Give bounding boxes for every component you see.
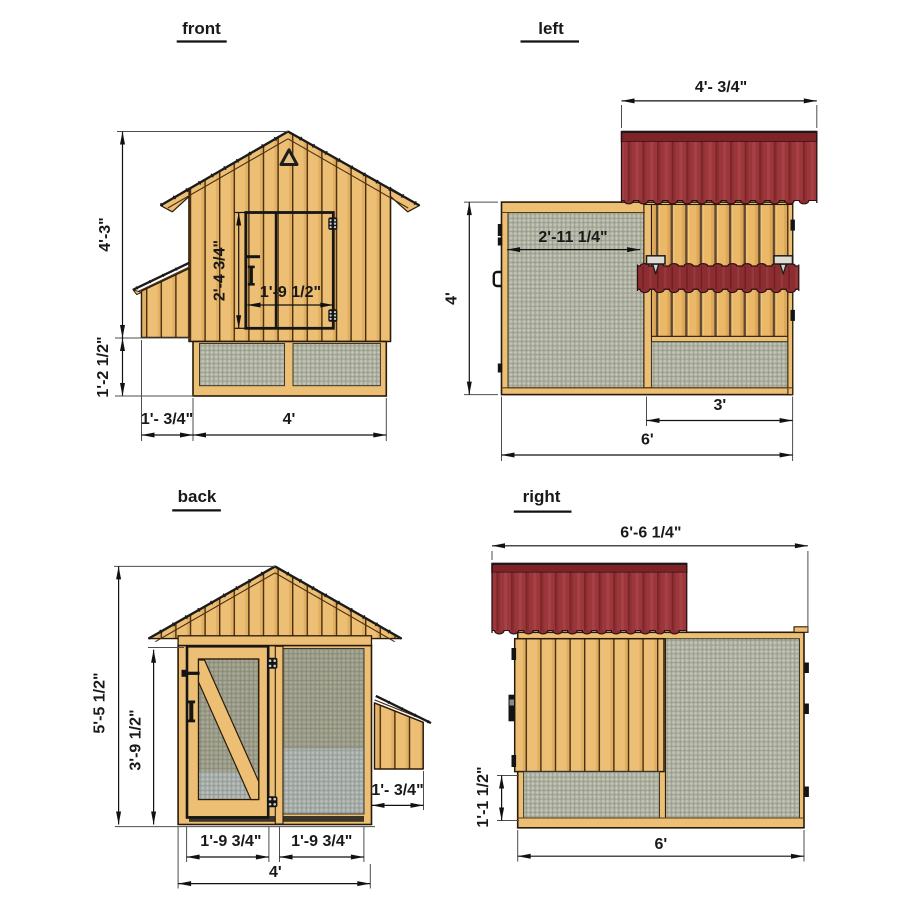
- svg-text:4': 4': [283, 411, 296, 428]
- svg-text:4'-3": 4'-3": [97, 217, 114, 252]
- svg-text:left: left: [538, 19, 564, 38]
- svg-text:5'-5 1/2": 5'-5 1/2": [92, 672, 109, 733]
- svg-text:front: front: [182, 19, 221, 38]
- svg-text:6': 6': [654, 836, 667, 853]
- svg-text:1'-2 1/2": 1'-2 1/2": [95, 336, 112, 397]
- svg-text:2'-4 3/4": 2'-4 3/4": [212, 240, 229, 301]
- svg-text:back: back: [178, 487, 217, 506]
- svg-text:1'-9 3/4": 1'-9 3/4": [291, 833, 352, 850]
- svg-text:6': 6': [641, 432, 654, 449]
- svg-text:1'-1 1/2": 1'-1 1/2": [475, 766, 492, 827]
- svg-text:3': 3': [713, 397, 726, 414]
- svg-text:1'- 3/4": 1'- 3/4": [371, 782, 423, 799]
- svg-text:1'-9 1/2": 1'-9 1/2": [260, 284, 321, 301]
- svg-text:1'-9 3/4": 1'-9 3/4": [200, 833, 261, 850]
- svg-text:4': 4': [444, 292, 461, 305]
- svg-text:right: right: [523, 487, 561, 506]
- svg-text:4'- 3/4": 4'- 3/4": [695, 79, 747, 96]
- svg-text:6'-6 1/4": 6'-6 1/4": [620, 525, 681, 542]
- svg-text:1'- 3/4": 1'- 3/4": [141, 411, 193, 428]
- svg-text:4': 4': [269, 864, 282, 881]
- svg-text:2'-11 1/4": 2'-11 1/4": [538, 229, 607, 246]
- svg-text:3'-9 1/2": 3'-9 1/2": [128, 709, 145, 770]
